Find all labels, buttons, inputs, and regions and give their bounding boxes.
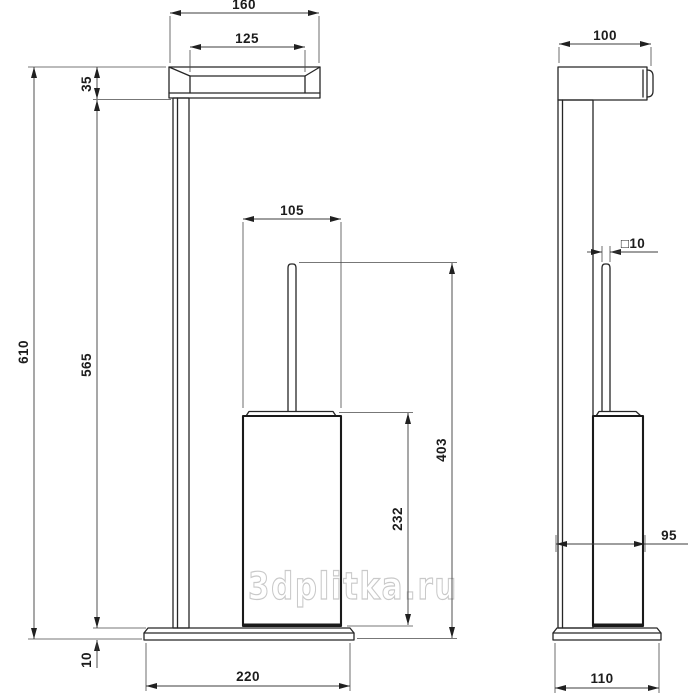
watermark-text: 3dplitka.ru <box>248 565 458 608</box>
dim-label: □10 <box>621 236 645 251</box>
dim-label: 10 <box>79 652 94 668</box>
dim-label: 232 <box>390 507 405 531</box>
dim-label: 110 <box>591 671 614 686</box>
dim-label: 35 <box>79 76 94 92</box>
dim-label: 105 <box>280 203 304 218</box>
dim-label: 160 <box>232 0 256 12</box>
dim-label: 403 <box>434 438 449 462</box>
dim-label: 565 <box>79 353 94 377</box>
technical-drawing-page: 3dplitka.ru <box>0 0 700 700</box>
dim-label: 100 <box>593 28 617 43</box>
dim-label: 610 <box>16 340 31 364</box>
dim-label: 95 <box>661 528 677 543</box>
drawing-canvas: 3dplitka.ru <box>0 0 700 700</box>
dim-label: 125 <box>235 31 259 46</box>
dim-label: 220 <box>236 669 260 684</box>
